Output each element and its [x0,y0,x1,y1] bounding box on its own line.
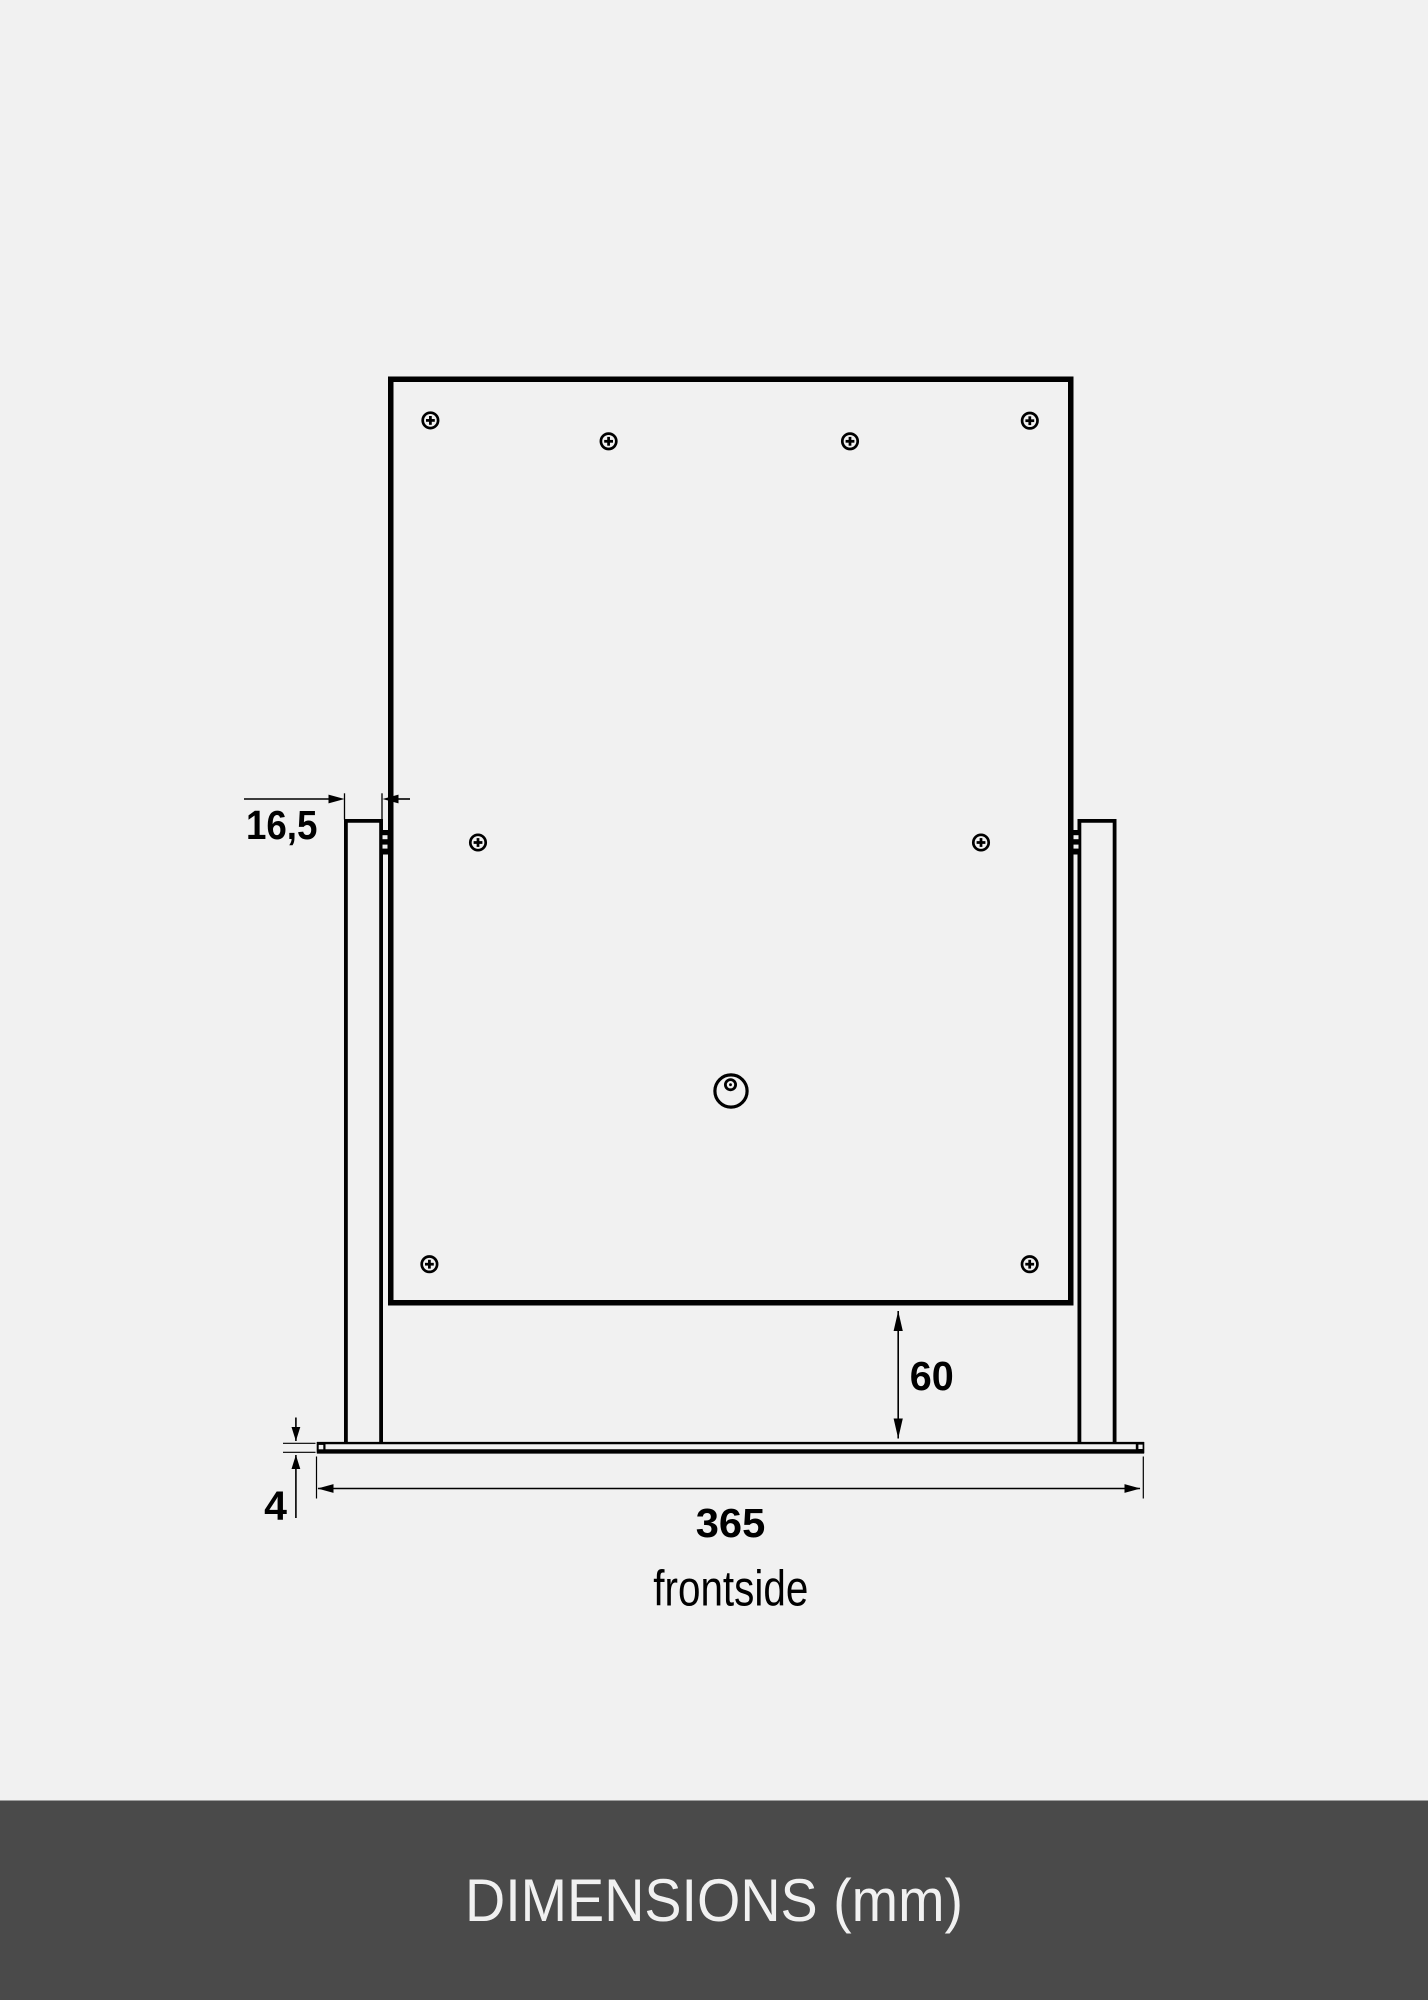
svg-text:365: 365 [696,1500,766,1546]
svg-text:frontside: frontside [653,1561,808,1617]
svg-text:60: 60 [910,1353,954,1399]
svg-text:16,5: 16,5 [246,802,318,848]
svg-text:4: 4 [264,1483,287,1529]
svg-text:DIMENSIONS (mm): DIMENSIONS (mm) [465,1867,963,1934]
